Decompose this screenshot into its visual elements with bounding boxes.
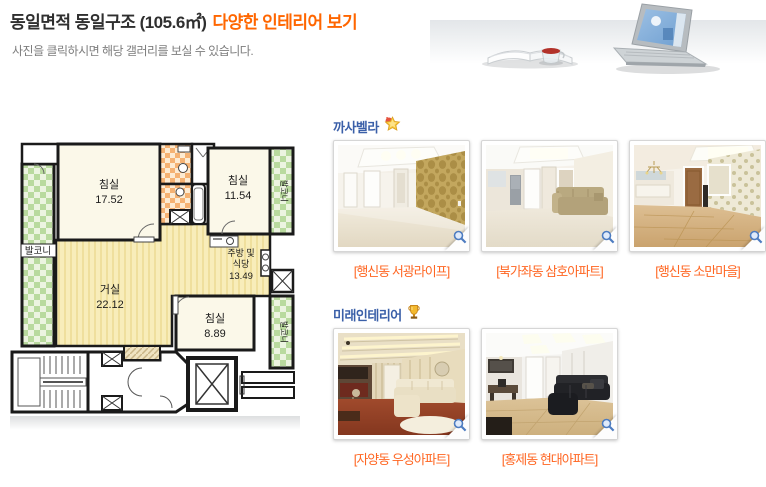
photo-card: [행신동 서광라이프] [333, 140, 470, 280]
photo-caption[interactable]: [북가좌동 삼호아파트] [481, 261, 618, 280]
magnifier-icon [749, 230, 763, 249]
floor-plan: 발코니 침실 17.52 침실 11.54 거실 22.12 주방 및 식당 1… [10, 138, 300, 416]
magnifier-icon [453, 418, 467, 437]
label-kitchen-1: 주방 및 [227, 247, 254, 258]
label-bedroom2: 침실 [228, 174, 248, 187]
photo-thumbnail-jayang-woosung[interactable] [333, 328, 470, 440]
label-bedroom3-area: 8.89 [204, 328, 225, 340]
magnifier-icon [601, 418, 615, 437]
label-living: 거실 [100, 283, 120, 296]
photo-caption[interactable]: [행신동 소만마을] [629, 261, 766, 280]
photo-caption[interactable]: [행신동 서광라이프] [333, 261, 470, 280]
photo-caption[interactable]: [홍제동 현대아파트] [481, 449, 618, 468]
label-bedroom1: 침실 [99, 178, 119, 191]
label-bedroom1-area: 17.52 [95, 194, 123, 206]
photo-thumbnail-haengsin-seogwang[interactable] [333, 140, 470, 252]
section-casabella-title: 까사벨라 [333, 117, 379, 136]
label-balcony-right-bottom: 발코니 [280, 321, 290, 343]
label-kitchen-area: 13.49 [229, 271, 253, 282]
page-title: 동일면적 동일구조 (105.6㎡)다양한 인테리어 보기 [10, 8, 357, 33]
page-title-main: 동일면적 동일구조 (105.6㎡) [10, 13, 206, 32]
section-mirae-interior: 미래인테리어 [333, 306, 618, 468]
label-balcony-left: 발코니 [25, 246, 51, 257]
label-kitchen-2: 식당 [233, 259, 250, 269]
page-title-accent: 다양한 인테리어 보기 [212, 13, 357, 32]
magnifier-icon [601, 230, 615, 249]
photo-card: [북가좌동 삼호아파트] [481, 140, 618, 280]
hero-decoration-image [430, 0, 766, 92]
trophy-icon [407, 304, 421, 325]
photo-caption[interactable]: [자양동 우성아파트] [333, 449, 470, 468]
label-living-area: 22.12 [96, 299, 124, 311]
interior-gallery-page: 동일면적 동일구조 (105.6㎡)다양한 인테리어 보기 사진을 클릭하시면 … [0, 0, 766, 487]
label-balcony-right-top: 발코니 [280, 180, 290, 202]
photo-card: [자양동 우성아파트] [333, 328, 470, 468]
section-mirae-title: 미래인테리어 [333, 305, 402, 324]
section-casabella: 까사벨라 [333, 118, 766, 280]
floor-plan-reflection [10, 416, 300, 430]
star-medal-icon [384, 116, 401, 137]
photo-thumbnail-bukgajwa-samho[interactable] [481, 140, 618, 252]
photo-card: [행신동 소만마을] [629, 140, 766, 280]
photo-card: [홍제동 현대아파트] [481, 328, 618, 468]
label-bedroom2-area: 11.54 [225, 190, 252, 202]
magnifier-icon [453, 230, 467, 249]
page-subtitle: 사진을 클릭하시면 해당 갤러리를 보실 수 있습니다. [12, 42, 253, 59]
photo-thumbnail-haengsin-soman[interactable] [629, 140, 766, 252]
label-bedroom3: 침실 [205, 312, 225, 325]
photo-thumbnail-hongje-hyundai[interactable] [481, 328, 618, 440]
